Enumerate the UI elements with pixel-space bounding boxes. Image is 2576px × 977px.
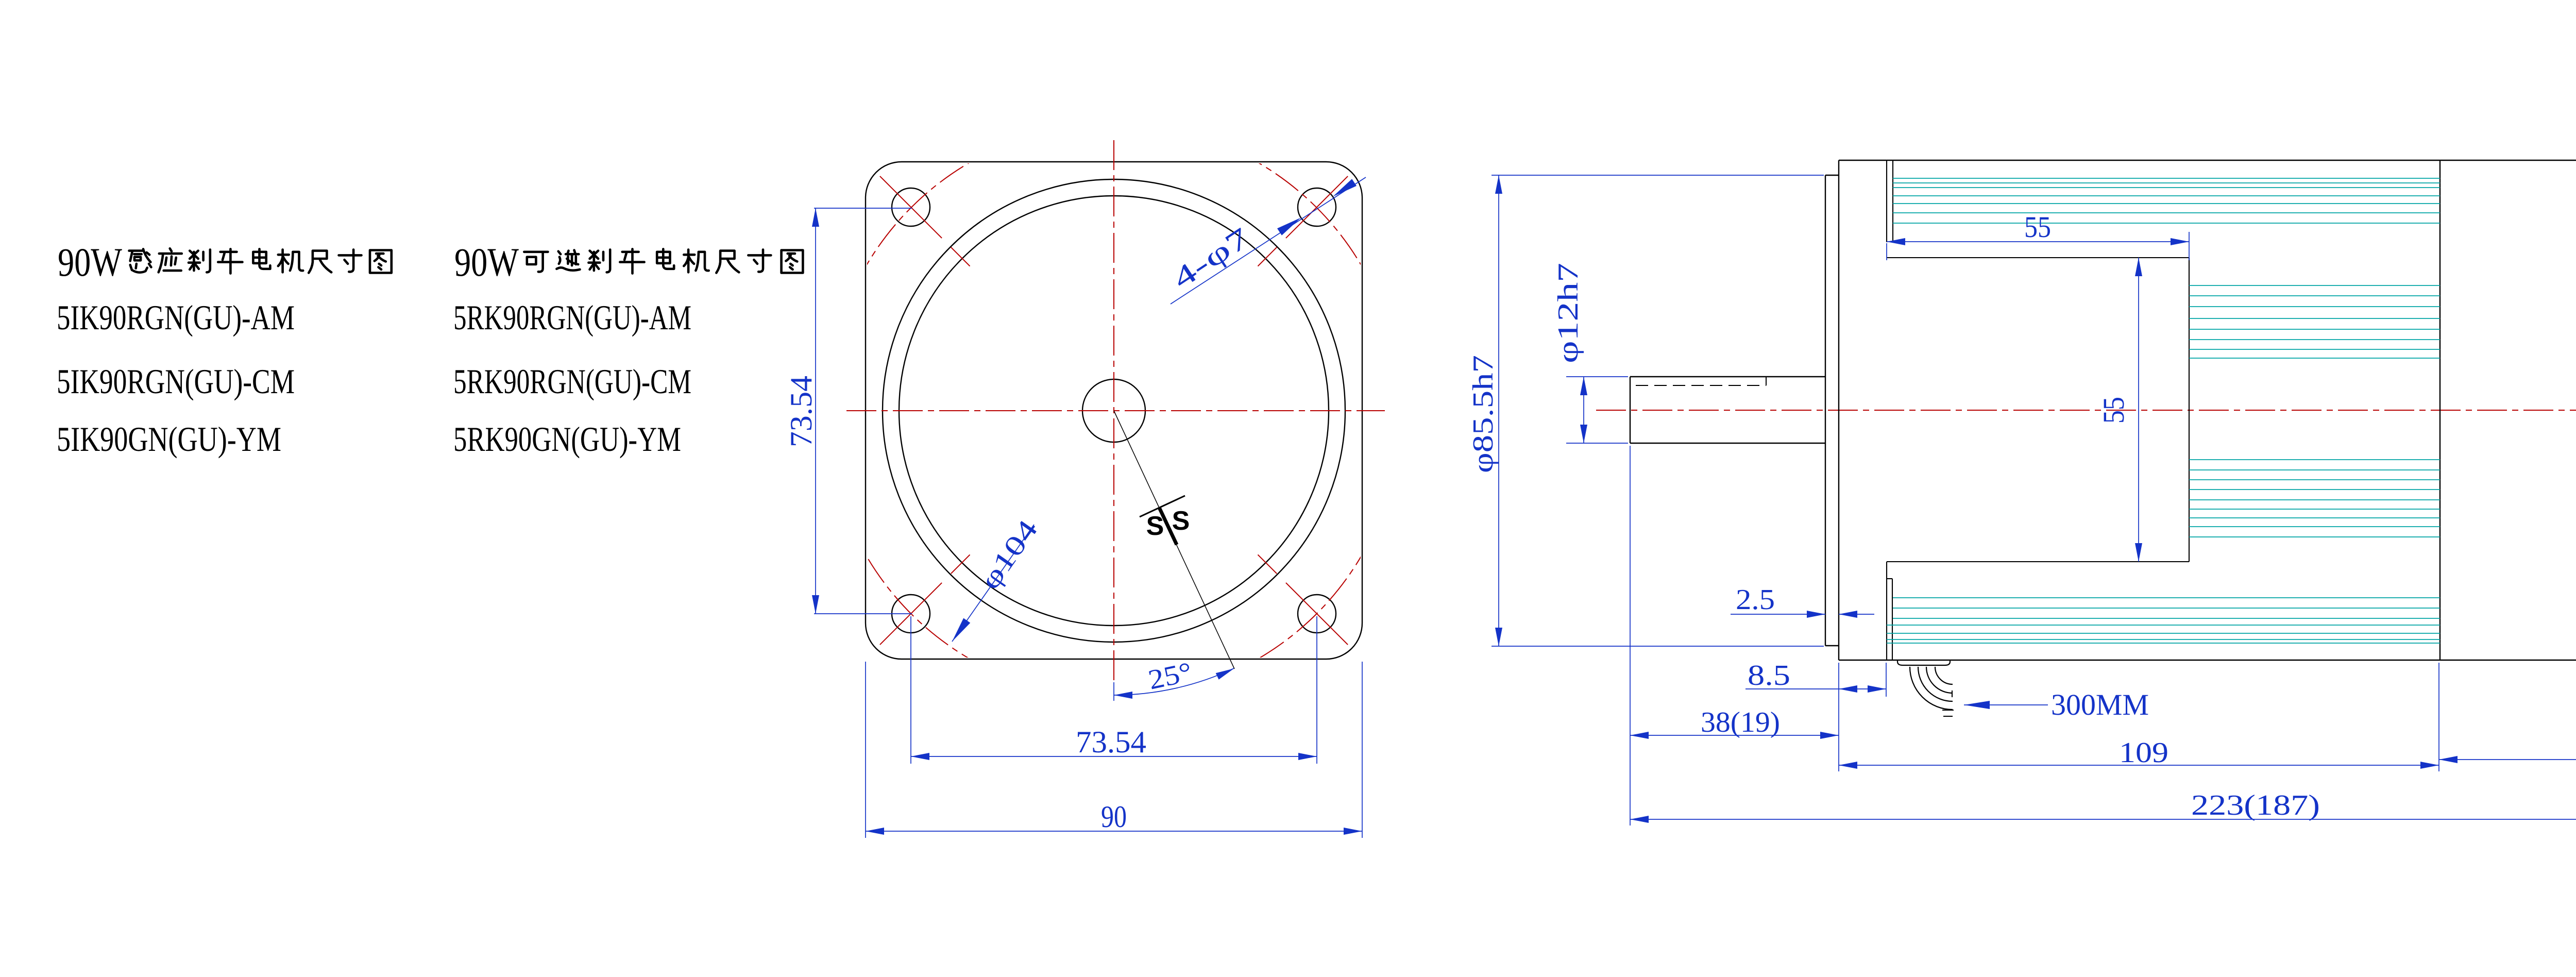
svg-text:109: 109 bbox=[2119, 737, 2168, 769]
svg-text:5RK90RGN(GU)-AM: 5RK90RGN(GU)-AM bbox=[453, 298, 691, 337]
svg-text:5IK90RGN(GU)-AM: 5IK90RGN(GU)-AM bbox=[57, 298, 295, 337]
svg-text:90: 90 bbox=[1101, 800, 1127, 834]
svg-text:5RK90GN(GU)-YM: 5RK90GN(GU)-YM bbox=[453, 419, 681, 459]
svg-text:5RK90RGN(GU)-CM: 5RK90RGN(GU)-CM bbox=[453, 362, 691, 401]
svg-text:38(19): 38(19) bbox=[1701, 706, 1780, 738]
svg-text:55: 55 bbox=[2024, 210, 2051, 244]
svg-text:223(187): 223(187) bbox=[2191, 789, 2320, 821]
svg-text:90W: 90W bbox=[454, 240, 519, 284]
svg-text:90W: 90W bbox=[58, 240, 122, 284]
svg-text:8.5: 8.5 bbox=[1748, 660, 1790, 692]
svg-text:5IK90RGN(GU)-CM: 5IK90RGN(GU)-CM bbox=[57, 362, 295, 401]
svg-text:S: S bbox=[1146, 511, 1164, 541]
svg-text:300MM: 300MM bbox=[2051, 688, 2149, 721]
svg-text:73.54: 73.54 bbox=[1076, 725, 1146, 759]
svg-text:φ85.5h7: φ85.5h7 bbox=[1467, 355, 1499, 473]
svg-text:5IK90GN(GU)-YM: 5IK90GN(GU)-YM bbox=[57, 419, 281, 459]
svg-text:2.5: 2.5 bbox=[1736, 584, 1775, 616]
svg-text:73.54: 73.54 bbox=[784, 376, 818, 447]
svg-text:55: 55 bbox=[2097, 397, 2130, 424]
svg-text:φ12h7: φ12h7 bbox=[1552, 263, 1584, 363]
svg-text:S: S bbox=[1172, 506, 1190, 536]
